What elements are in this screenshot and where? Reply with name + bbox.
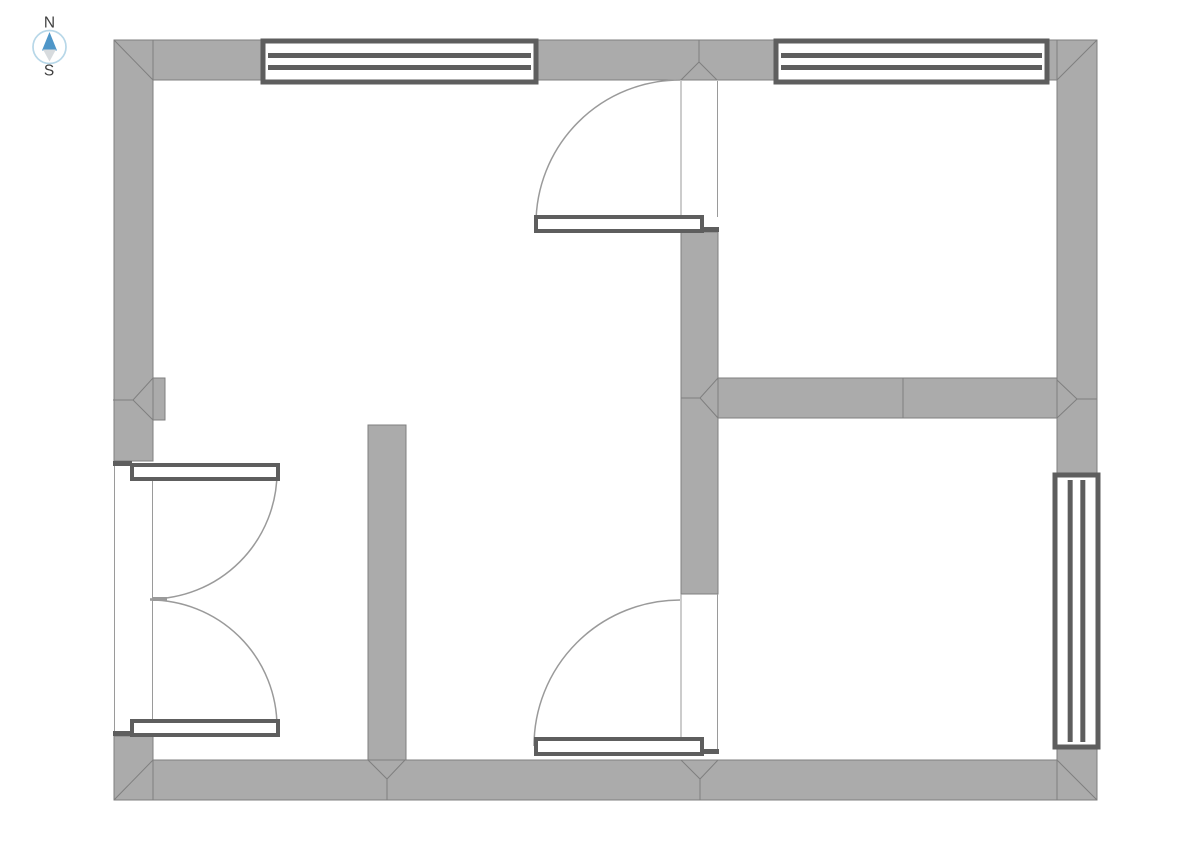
left-wall-lower bbox=[114, 736, 153, 800]
door-leaf-north-hall[interactable] bbox=[536, 217, 702, 231]
interior-wall-center-vertical bbox=[681, 232, 718, 594]
window-north-right[interactable] bbox=[776, 41, 1047, 82]
interior-wall-right-horizontal bbox=[718, 378, 1057, 418]
interior-wall-left-vertical bbox=[368, 425, 406, 760]
floor-plan-viewer: N S bbox=[0, 0, 1191, 842]
window-north-left[interactable] bbox=[263, 41, 536, 82]
bottom-wall bbox=[114, 760, 1097, 800]
wall-seams-layer bbox=[113, 40, 1097, 800]
window-frame bbox=[776, 41, 1047, 82]
floor-plan-canvas[interactable]: N S bbox=[0, 0, 1191, 842]
door-leaf-west-lower[interactable] bbox=[132, 721, 278, 735]
door-sill-south-hall bbox=[702, 749, 719, 754]
left-wall-upper bbox=[114, 40, 153, 461]
door-leaf-west-upper[interactable] bbox=[132, 465, 278, 479]
door-swing-arc-west-upper bbox=[150, 472, 277, 599]
window-east[interactable] bbox=[1055, 475, 1098, 747]
doors-layer bbox=[113, 80, 719, 754]
compass-rose: N S bbox=[33, 15, 66, 80]
door-swing-arc-north-hall bbox=[536, 80, 680, 224]
right-wall-upper bbox=[1057, 40, 1097, 477]
right-wall-lower bbox=[1057, 745, 1097, 800]
door-sill-west-upper bbox=[113, 461, 132, 466]
door-sill-north-hall bbox=[702, 227, 719, 232]
compass-north-label: N bbox=[44, 15, 55, 32]
south-arrow-icon bbox=[43, 50, 56, 62]
door-leaf-south-hall[interactable] bbox=[536, 739, 702, 754]
window-frame bbox=[263, 41, 536, 82]
window-frame bbox=[1055, 475, 1098, 747]
left-wall-pilaster bbox=[153, 378, 165, 420]
door-swing-arc-west-lower bbox=[150, 600, 277, 727]
door-swing-arc-south-hall bbox=[534, 600, 680, 746]
compass-south-label: S bbox=[44, 63, 54, 80]
double-door-meeting-dash bbox=[152, 597, 167, 601]
door-sill-west-lower bbox=[113, 731, 132, 736]
north-arrow-icon bbox=[42, 32, 57, 51]
walls-layer bbox=[114, 40, 1097, 800]
